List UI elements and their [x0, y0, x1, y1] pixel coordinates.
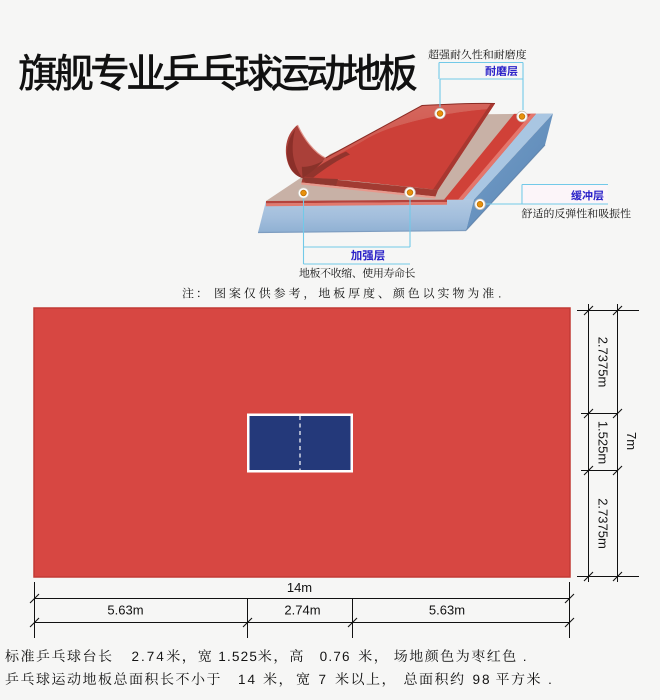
svg-text:2.7375m: 2.7375m [596, 337, 611, 388]
svg-text:5.63m: 5.63m [107, 603, 143, 618]
svg-text:7m: 7m [624, 432, 639, 450]
svg-text:1.525m: 1.525m [596, 421, 611, 464]
svg-text:14m: 14m [287, 580, 312, 595]
svg-text:5.63m: 5.63m [429, 603, 465, 618]
svg-text:2.7375m: 2.7375m [596, 498, 611, 549]
svg-text:2.74m: 2.74m [284, 603, 320, 618]
